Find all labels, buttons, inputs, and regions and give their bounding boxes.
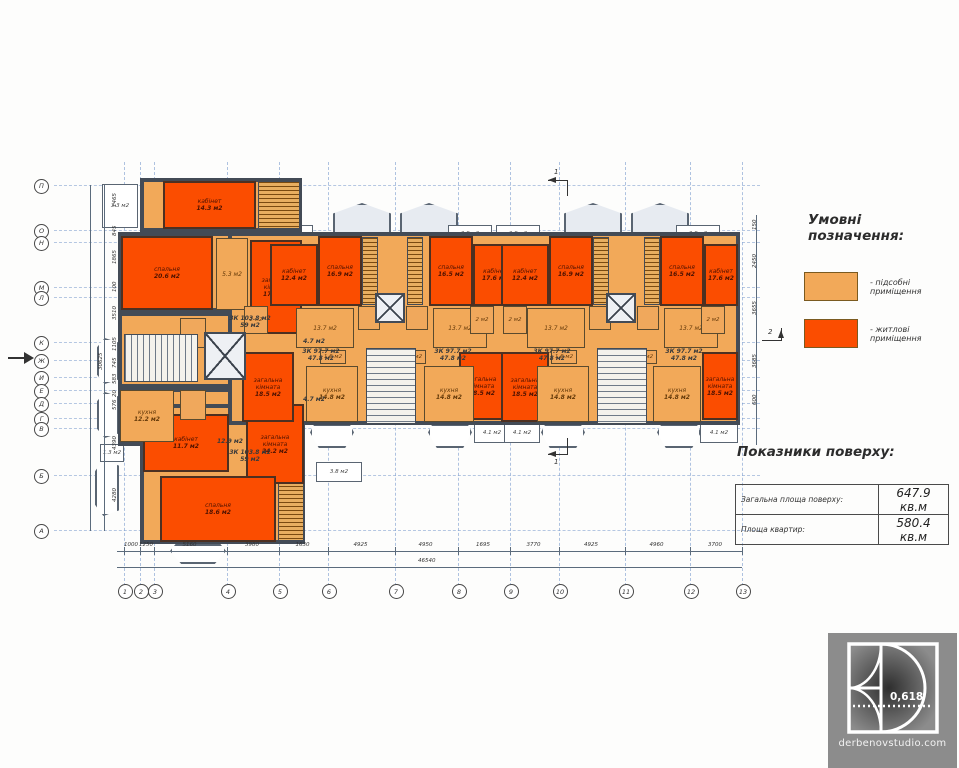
legend-item-label: - житлові приміщення	[870, 325, 955, 343]
entry-arrow-head	[24, 352, 40, 364]
room-living: спальня20.6 м2	[121, 236, 213, 310]
room-utility: кухня12.2 м2	[120, 390, 174, 442]
dimension-value: 845	[112, 226, 118, 237]
dimension-value: 4925	[354, 542, 368, 548]
axis-letter-bubble: П	[34, 179, 49, 194]
staircase	[124, 334, 198, 382]
indicators-title: Показники поверху:	[737, 444, 951, 460]
room-utility: кухня14.8 м2	[424, 366, 474, 422]
dimension-value: 3770	[527, 542, 541, 548]
terrace: 4.1 м2	[700, 424, 738, 443]
dimension-tick	[458, 547, 459, 555]
dimension-value: 745	[112, 358, 118, 369]
room-living: кабінет12.4 м2	[270, 244, 318, 306]
plan-label: 3К 97.7 м247.8 м2	[420, 346, 486, 364]
room-small	[637, 306, 659, 330]
dimension-total: 46540	[418, 558, 436, 564]
dimension-value: 1105	[112, 337, 118, 351]
legend-item-label: - підсобні приміщення	[870, 278, 955, 296]
room-small: 2 м2	[470, 306, 494, 334]
row-value: 647.9 кв.м	[879, 485, 949, 515]
axis-number-bubble: 5	[273, 584, 288, 599]
dimension-total: 30625	[98, 353, 104, 371]
dimension-line	[117, 551, 742, 552]
dimension-tick	[395, 547, 396, 555]
floor-plan-sheet: 12345678910111213ПОНМЛКЖИЕДГВБА3.8 м23.8…	[0, 0, 959, 768]
axis-number-bubble: 4	[221, 584, 236, 599]
dimension-value: 1465	[112, 193, 118, 207]
bay-window	[170, 544, 226, 564]
axis-letter-bubble: Л	[34, 291, 49, 306]
axis-number-bubble: 12	[684, 584, 699, 599]
room-small: 2 м2	[503, 306, 527, 334]
vent-shaft	[258, 181, 300, 229]
dimension-value: 3980	[245, 542, 259, 548]
room-small	[406, 306, 428, 330]
dimension-line	[117, 567, 742, 568]
plan-label: 4.7 м2	[298, 336, 330, 347]
plan-label: 3К 97.7 м247.8 м2	[651, 346, 717, 364]
section-mark: 1	[548, 442, 574, 468]
dimension-value: 4950	[419, 542, 433, 548]
dimension-value: 4960	[650, 542, 664, 548]
section-mark: 2	[762, 328, 788, 354]
axis-letter-bubble: В	[34, 422, 49, 437]
axis-number-bubble: 1	[118, 584, 133, 599]
terrace: 4.1 м2	[504, 424, 540, 443]
table-row: Загальна площа поверху: 647.9 кв.м	[736, 485, 949, 515]
dimension-value: 20	[112, 390, 118, 397]
studio-logo: 0,618 derbenovstudio.com	[828, 633, 957, 768]
legend: Умовні позначення: - підсобні приміщення…	[800, 212, 955, 366]
balcony-lodge	[564, 203, 622, 234]
room-utility: 5.3 м2	[216, 238, 248, 310]
dimension-value: 1630	[296, 542, 310, 548]
utility-color-swatch	[804, 272, 858, 301]
plan-label: 3К 103.8 м259 м2	[206, 312, 294, 332]
axis-letter-bubble: Н	[34, 236, 49, 251]
room-utility: 13.7 м2	[527, 308, 585, 348]
dimension-value: 583	[112, 374, 118, 385]
dimension-value: 3685	[752, 354, 758, 368]
elevator-shaft	[606, 293, 636, 323]
room-living: спальня16.9 м2	[549, 236, 593, 306]
room-small: 2 м2	[701, 306, 725, 334]
golden-ratio-value: 0,618	[890, 691, 923, 703]
dimension-value: 3700	[708, 542, 722, 548]
staircase	[366, 348, 416, 424]
axis-number-bubble: 10	[553, 584, 568, 599]
axis-number-bubble: 6	[322, 584, 337, 599]
dimension-tick	[124, 547, 125, 555]
room-living: спальня18.6 м2	[160, 476, 276, 542]
axis-number-bubble: 8	[452, 584, 467, 599]
dimension-line	[90, 185, 91, 531]
elevator-shaft	[204, 332, 246, 380]
dimension-tick	[154, 547, 155, 555]
dimension-tick	[690, 547, 691, 555]
dimension-tick	[227, 547, 228, 555]
floor-plan-drawing: 12345678910111213ПОНМЛКЖИЕДГВБА3.8 м23.8…	[0, 0, 959, 768]
terrace: 3.3 м2	[102, 184, 138, 228]
axis-letter-bubble: Б	[34, 469, 49, 484]
dimension-tick	[559, 547, 560, 555]
room-utility: кухня14.8 м2	[653, 366, 701, 422]
room-living: загальна кімната18.5 м2	[242, 352, 294, 422]
room-living: спальня16.9 м2	[318, 236, 362, 306]
legend-item-living: - житлові приміщення	[804, 319, 955, 348]
elevator-shaft	[375, 293, 405, 323]
row-label: Загальна площа поверху:	[736, 485, 879, 515]
dimension-value: 4280	[112, 488, 118, 502]
indicators-table: Загальна площа поверху: 647.9 кв.м Площа…	[735, 484, 949, 545]
bay-window	[657, 424, 701, 448]
studio-site-label: derbenovstudio.com	[839, 738, 947, 749]
vent-shaft	[278, 477, 304, 541]
axis-number-bubble: 11	[619, 584, 634, 599]
dimension-value: 4925	[584, 542, 598, 548]
axis-number-bubble: 9	[504, 584, 519, 599]
staircase	[597, 348, 647, 424]
dimension-tick	[742, 547, 743, 555]
living-color-swatch	[804, 319, 858, 348]
plan-label: 12.9 м2	[212, 436, 248, 447]
axis-letter-bubble: Д	[34, 397, 49, 412]
dimension-value: 600	[752, 395, 758, 406]
dimension-tick	[328, 547, 329, 555]
dimension-value: 100	[112, 282, 118, 293]
plan-label: 3К 97.7 м247.8 м2	[519, 346, 585, 364]
dimension-line	[756, 215, 757, 445]
dimension-tick	[140, 547, 141, 555]
vent-shaft	[644, 237, 660, 305]
room-living: кабінет14.3 м2	[163, 181, 256, 229]
axis-letter-bubble: К	[34, 336, 49, 351]
dimension-value: 3510	[112, 306, 118, 320]
dimension-value: 150	[752, 220, 758, 231]
vent-shaft	[407, 237, 423, 305]
row-label: Площа квартир:	[736, 515, 879, 545]
bay-window	[310, 424, 354, 448]
dimension-value: 1695	[476, 542, 490, 548]
room-living: кабінет17.6 м2	[704, 244, 738, 306]
dimension-value: 1000	[124, 542, 138, 548]
dimension-value: 576	[112, 400, 118, 411]
dimension-value: 2450	[752, 254, 758, 268]
bay-window	[428, 424, 472, 448]
terrace: 3.8 м2	[316, 462, 362, 482]
axis-letter-bubble: А	[34, 524, 49, 539]
plan-label: 3К 103.8 м259 м2	[206, 446, 294, 466]
dimension-value: 1250	[139, 542, 153, 548]
dimension-line	[104, 185, 105, 531]
legend-title: Умовні позначення:	[808, 212, 955, 244]
axis-number-bubble: 7	[389, 584, 404, 599]
dimension-value: 5160	[183, 542, 197, 548]
dimension-value: 3655	[752, 301, 758, 315]
dimension-value: 4390	[112, 436, 118, 450]
plan-label: 3К 97.7 м247.8 м2	[288, 346, 354, 364]
table-row: Площа квартир: 580.4 кв.м	[736, 515, 949, 545]
legend-item-utility: - підсобні приміщення	[804, 272, 955, 301]
axis-number-bubble: 13	[736, 584, 751, 599]
dimension-tick	[625, 547, 626, 555]
plan-label: 4.7 м2	[298, 394, 330, 405]
room-living: спальня16.5 м2	[660, 236, 704, 306]
entry-arrow-icon	[8, 352, 34, 364]
room-utility: кухня14.8 м2	[537, 366, 589, 422]
dimension-tick	[510, 547, 511, 555]
room-small	[180, 390, 206, 420]
section-mark: 1	[548, 168, 574, 194]
room-living: кабінет12.4 м2	[501, 244, 549, 306]
floor-indicators: Показники поверху: Загальна площа поверх…	[735, 444, 951, 545]
balcony-lodge	[333, 203, 391, 234]
row-value: 580.4 кв.м	[879, 515, 949, 545]
dimension-tick	[279, 547, 280, 555]
axis-number-bubble: 3	[148, 584, 163, 599]
dimension-value: 1865	[112, 250, 118, 264]
golden-ratio-logo-icon	[847, 642, 939, 734]
axis-number-bubble: 2	[134, 584, 149, 599]
room-living: спальня16.5 м2	[429, 236, 473, 306]
